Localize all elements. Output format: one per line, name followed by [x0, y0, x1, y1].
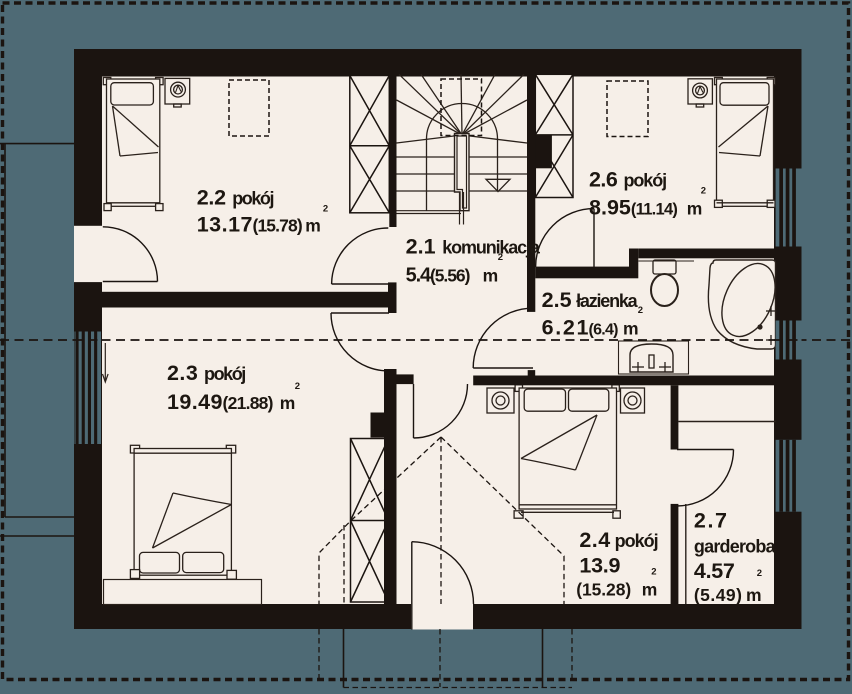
svg-text:2: 2	[701, 186, 706, 197]
svg-text:2.4: 2.4	[579, 528, 610, 552]
svg-text:19.49: 19.49	[167, 390, 223, 414]
svg-text:m: m	[280, 393, 296, 413]
svg-text:4.57: 4.57	[694, 559, 735, 583]
svg-text:pokój: pokój	[624, 170, 668, 190]
svg-text:2.3: 2.3	[167, 361, 198, 385]
svg-text:(5.56): (5.56)	[430, 266, 470, 286]
svg-text:m: m	[746, 585, 762, 605]
svg-text:8.95: 8.95	[589, 195, 631, 219]
svg-text:pokój: pokój	[615, 531, 659, 551]
svg-text:m: m	[687, 198, 703, 218]
svg-text:łazienka: łazienka	[576, 291, 639, 311]
svg-text:2: 2	[498, 252, 503, 263]
svg-text:(6.4): (6.4)	[589, 322, 619, 339]
svg-text:2.2: 2.2	[197, 185, 226, 209]
svg-text:2.1: 2.1	[406, 235, 436, 259]
svg-text:6.21: 6.21	[542, 316, 589, 340]
svg-text:2: 2	[638, 305, 643, 316]
svg-text:2.6: 2.6	[589, 167, 618, 191]
svg-text:(5.49): (5.49)	[694, 585, 742, 605]
svg-text:2: 2	[757, 568, 762, 579]
svg-text:pokój: pokój	[232, 188, 274, 208]
svg-text:m: m	[305, 216, 321, 236]
svg-text:(15.78): (15.78)	[253, 216, 303, 236]
svg-text:2: 2	[295, 381, 300, 392]
svg-text:komunikacja: komunikacja	[442, 238, 541, 258]
svg-text:2: 2	[651, 566, 656, 577]
svg-text:2.5: 2.5	[542, 288, 572, 312]
svg-text:(11.14): (11.14)	[631, 200, 678, 218]
svg-text:pokój: pokój	[204, 364, 246, 384]
svg-text:2: 2	[323, 204, 328, 215]
svg-text:(21.88): (21.88)	[223, 393, 274, 413]
svg-text:2.7: 2.7	[694, 508, 727, 532]
svg-text:garderoba: garderoba	[694, 537, 777, 557]
svg-text:13.17: 13.17	[197, 213, 253, 237]
svg-text:m: m	[483, 266, 499, 286]
svg-text:m: m	[642, 580, 658, 600]
svg-text:5.4: 5.4	[406, 265, 432, 287]
svg-text:m: m	[623, 319, 639, 339]
svg-text:(15.28): (15.28)	[576, 580, 631, 600]
svg-text:13.9: 13.9	[579, 554, 620, 578]
